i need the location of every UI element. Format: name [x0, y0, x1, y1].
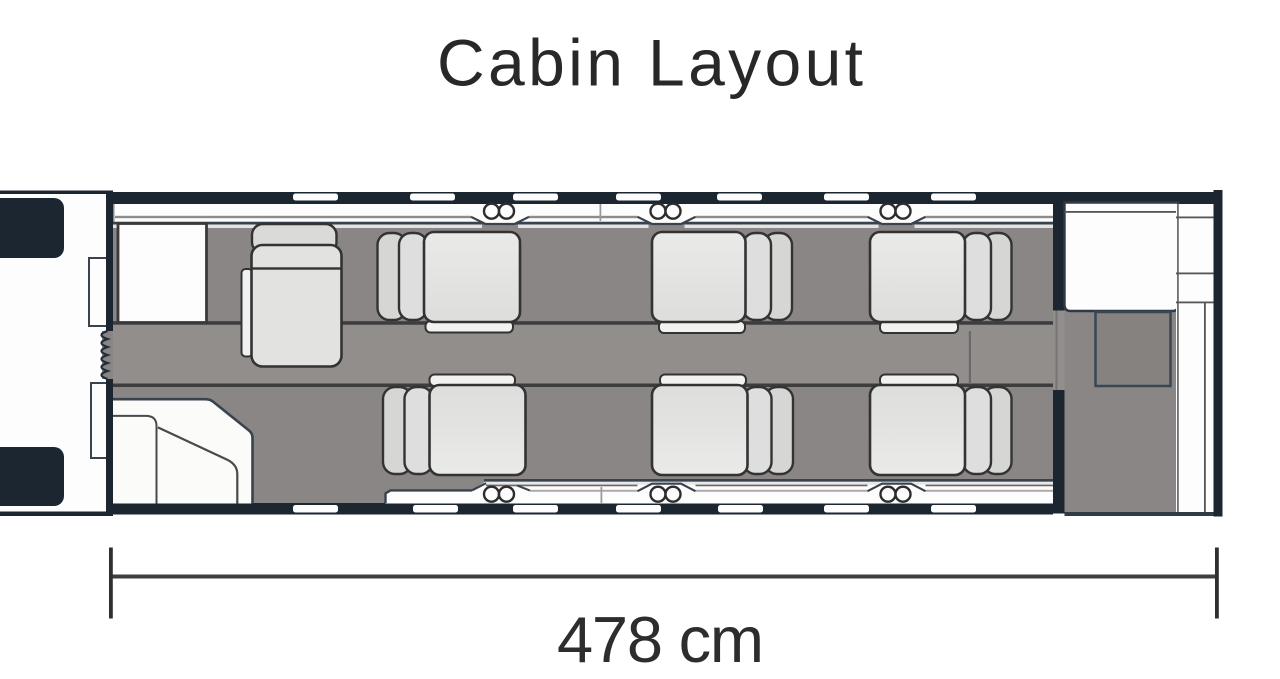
svg-text:478 cm: 478 cm [557, 603, 764, 674]
svg-text:Cabin Layout: Cabin Layout [437, 26, 863, 100]
